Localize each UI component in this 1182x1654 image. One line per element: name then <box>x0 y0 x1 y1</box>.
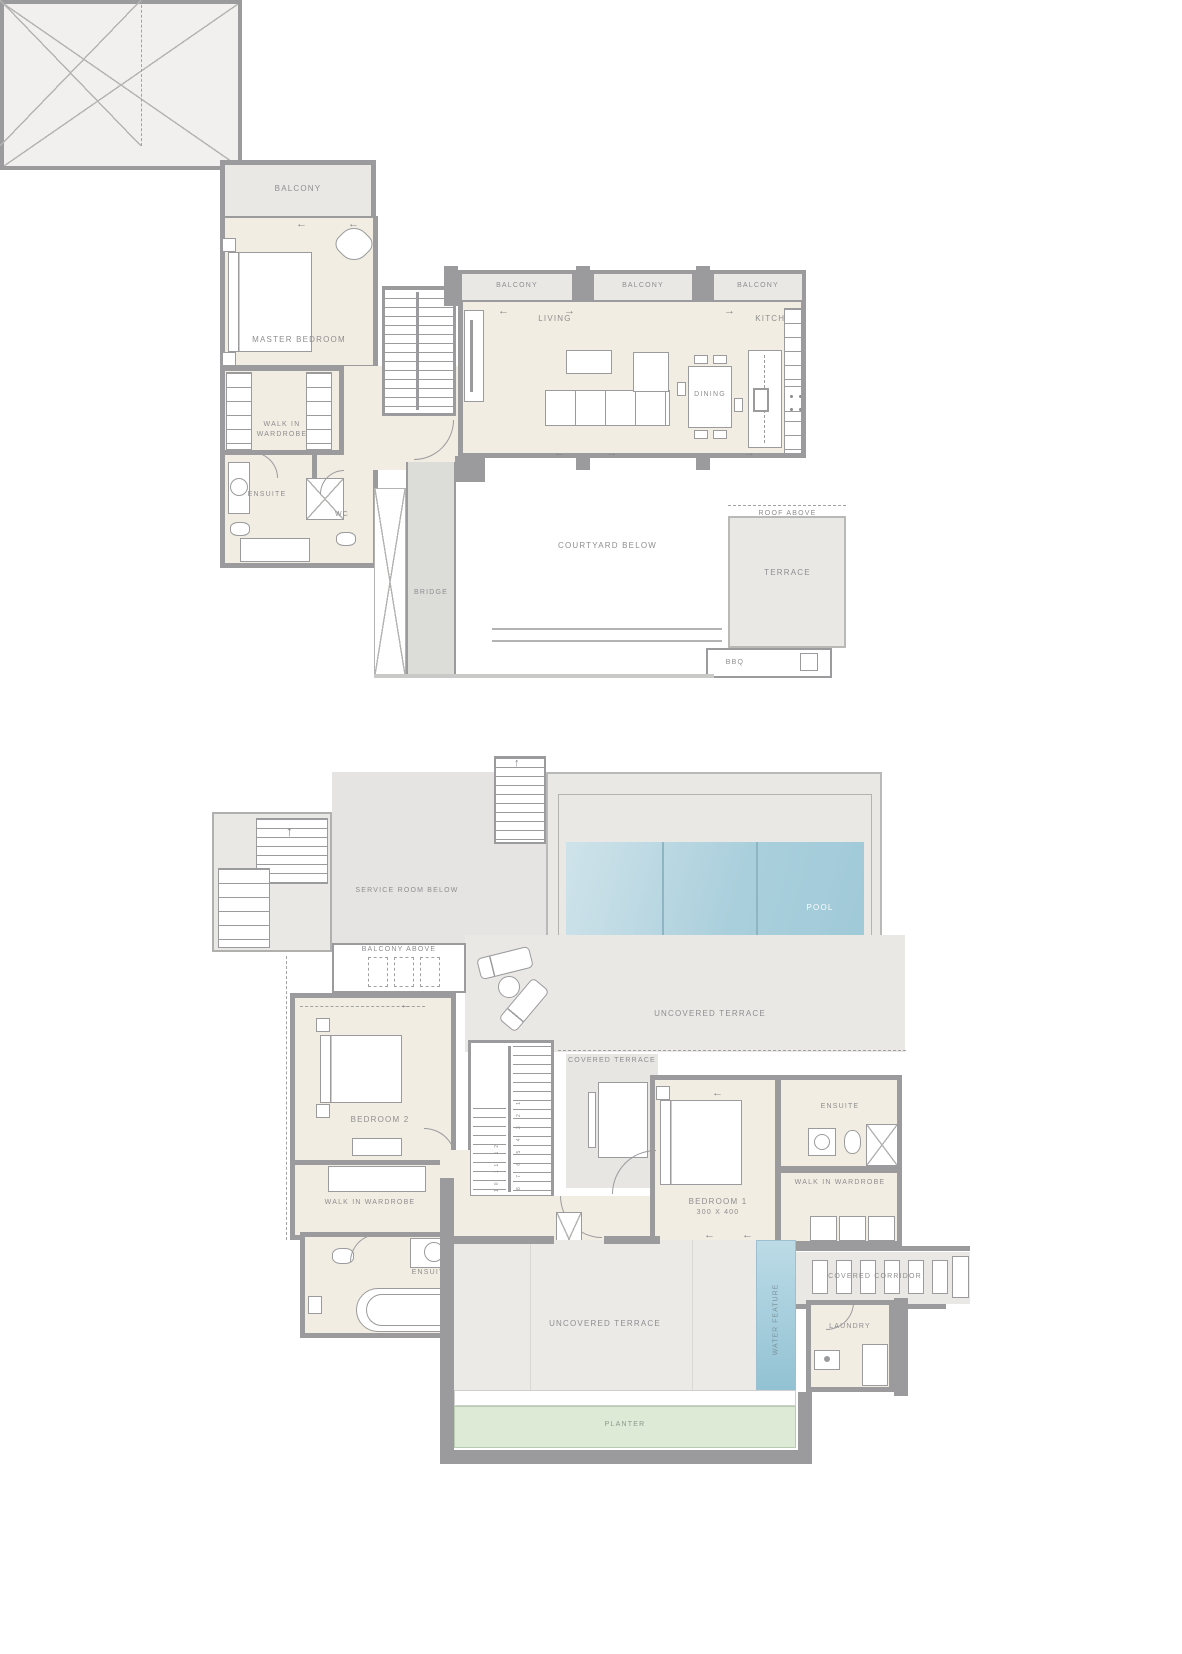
toilet <box>844 1130 861 1154</box>
perimeter-wall <box>894 1298 908 1396</box>
shower <box>866 1124 898 1166</box>
balcony-above-outline <box>394 957 414 987</box>
perimeter-wall <box>440 1178 454 1460</box>
wardrobe-counter <box>328 1166 426 1192</box>
bench <box>352 1138 402 1156</box>
bedroom2-label: BEDROOM 2 <box>320 1114 440 1126</box>
uncovered-terrace-bottom <box>454 1240 756 1390</box>
laundry-counter <box>862 1344 888 1386</box>
outdoor-bench <box>588 1092 596 1148</box>
wiw1-label: WALK IN WARDROBE <box>790 1178 890 1188</box>
stair-rail <box>508 1046 511 1192</box>
hall <box>440 1196 660 1240</box>
pool-deck-staircase <box>494 756 546 844</box>
wardrobe-unit <box>839 1216 866 1241</box>
balcony-above-outline <box>420 957 440 987</box>
stair-numbers-left: 10 11 12 <box>494 1110 500 1192</box>
balcony-above-outline <box>368 957 388 987</box>
covered-terrace-label: COVERED TERRACE <box>568 1056 656 1066</box>
floor-plan-lower: ↑ SERVICE ROOM BELOW ↑ POOL UNCOVERED TE… <box>0 0 1182 1654</box>
stair-flight-left <box>473 1108 506 1194</box>
stair-up-arrow-icon: ↑ <box>286 824 293 838</box>
terrace-wall <box>454 1236 554 1244</box>
outdoor-table <box>598 1082 648 1158</box>
water-feature-label: WATER FEATURE <box>773 1275 780 1365</box>
perimeter-wall <box>798 1392 812 1464</box>
pool-label: POOL <box>790 902 850 914</box>
bedroom1-dimension: 300 x 400 <box>662 1208 774 1218</box>
stair-numbers-right: 8 7 6 5 4 3 2 1 <box>516 1050 522 1190</box>
washer-door <box>824 1356 830 1362</box>
bedroom1-label: BEDROOM 1 <box>662 1196 774 1208</box>
corridor-wall <box>786 1246 970 1251</box>
perimeter-wall <box>440 1450 812 1464</box>
slide-arrow-icon: ← <box>712 1088 723 1099</box>
bidet <box>308 1296 322 1314</box>
service-room-label: SERVICE ROOM BELOW <box>336 886 478 896</box>
stair-arrow-icon: ↑ <box>514 758 520 769</box>
nightstand <box>656 1086 670 1100</box>
paving-joint <box>530 1240 531 1390</box>
balcony-above-label: BALCONY ABOVE <box>332 945 466 955</box>
wardrobe-unit <box>868 1216 895 1241</box>
wiw2-label: WALK IN WARDROBE <box>320 1198 420 1208</box>
terrace-edge <box>454 1390 796 1406</box>
corridor-column <box>952 1256 969 1298</box>
service-room-below <box>0 0 142 146</box>
paving-joint <box>692 1240 693 1390</box>
uncovered-terrace-top-label: UNCOVERED TERRACE <box>630 1008 790 1020</box>
covered-terrace-boundary <box>558 1050 906 1051</box>
bed-1 <box>660 1100 742 1185</box>
basin <box>814 1134 830 1150</box>
nightstand <box>316 1018 330 1032</box>
bed-2 <box>320 1035 402 1103</box>
property-line <box>286 956 287 1240</box>
slide-arrow-icon: ← <box>400 1000 411 1011</box>
planter-label: PLANTER <box>540 1420 710 1430</box>
covered-corridor-label: COVERED CORRIDOR <box>800 1272 950 1282</box>
wardrobe-unit <box>810 1216 837 1241</box>
laundry-label: LAUNDRY <box>810 1322 890 1332</box>
side-table <box>498 976 520 998</box>
uncovered-terrace-bottom-label: UNCOVERED TERRACE <box>520 1318 690 1330</box>
ensuite1-label: ENSUITE <box>798 1102 882 1112</box>
terrace-wall <box>604 1236 660 1244</box>
storage-shelves <box>218 868 270 948</box>
